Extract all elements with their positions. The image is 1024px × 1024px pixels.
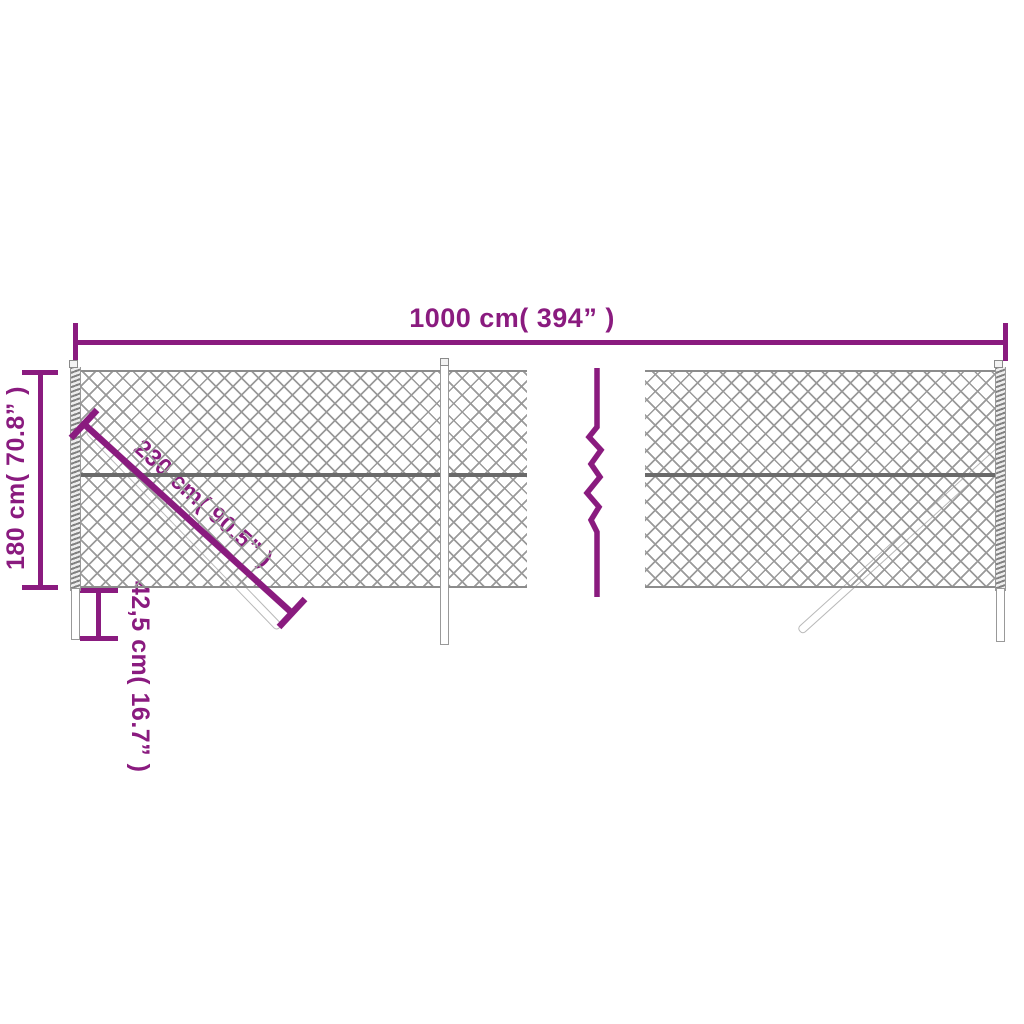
fence-dimension-diagram: 1000 cm( 394” ) 180 cm( 70.8” ) 230 cm( … — [0, 0, 1024, 1024]
fence-section-left — [75, 370, 527, 588]
total-width-dimension-label: 1000 cm( 394” ) — [0, 303, 1024, 334]
tension-wire-left — [75, 473, 527, 477]
post-depth-dimension-line — [96, 591, 101, 639]
post-depth-dimension-cap-bottom — [80, 636, 118, 641]
fence-post-middle — [440, 364, 449, 645]
height-dimension-line — [38, 372, 43, 590]
fence-post-left-cap — [69, 360, 78, 368]
total-width-dimension-cap-right — [1003, 323, 1008, 361]
total-width-dimension-line — [75, 340, 1006, 345]
tension-wire-right — [645, 473, 1005, 477]
post-depth-dimension-cap-top — [80, 588, 118, 593]
height-dimension-cap-bottom — [22, 585, 58, 590]
fence-section-right — [645, 370, 1005, 588]
chain-link-mesh-left-icon — [75, 370, 527, 588]
fence-post-right-below-ground — [996, 588, 1005, 642]
fence-post-right — [995, 367, 1006, 591]
fence-post-left — [70, 367, 81, 591]
height-dimension-cap-top — [22, 370, 58, 375]
fence-post-middle-cap — [440, 358, 449, 366]
height-dimension-label: 180 cm( 70.8” ) — [2, 370, 31, 586]
total-width-dimension-cap-left — [73, 323, 78, 361]
post-depth-dimension-label: 42,5 cm( 16.7” ) — [125, 581, 154, 801]
chain-link-mesh-right-icon — [645, 370, 1005, 588]
fence-post-right-cap — [994, 360, 1003, 368]
fence-post-left-below-ground — [71, 588, 80, 640]
